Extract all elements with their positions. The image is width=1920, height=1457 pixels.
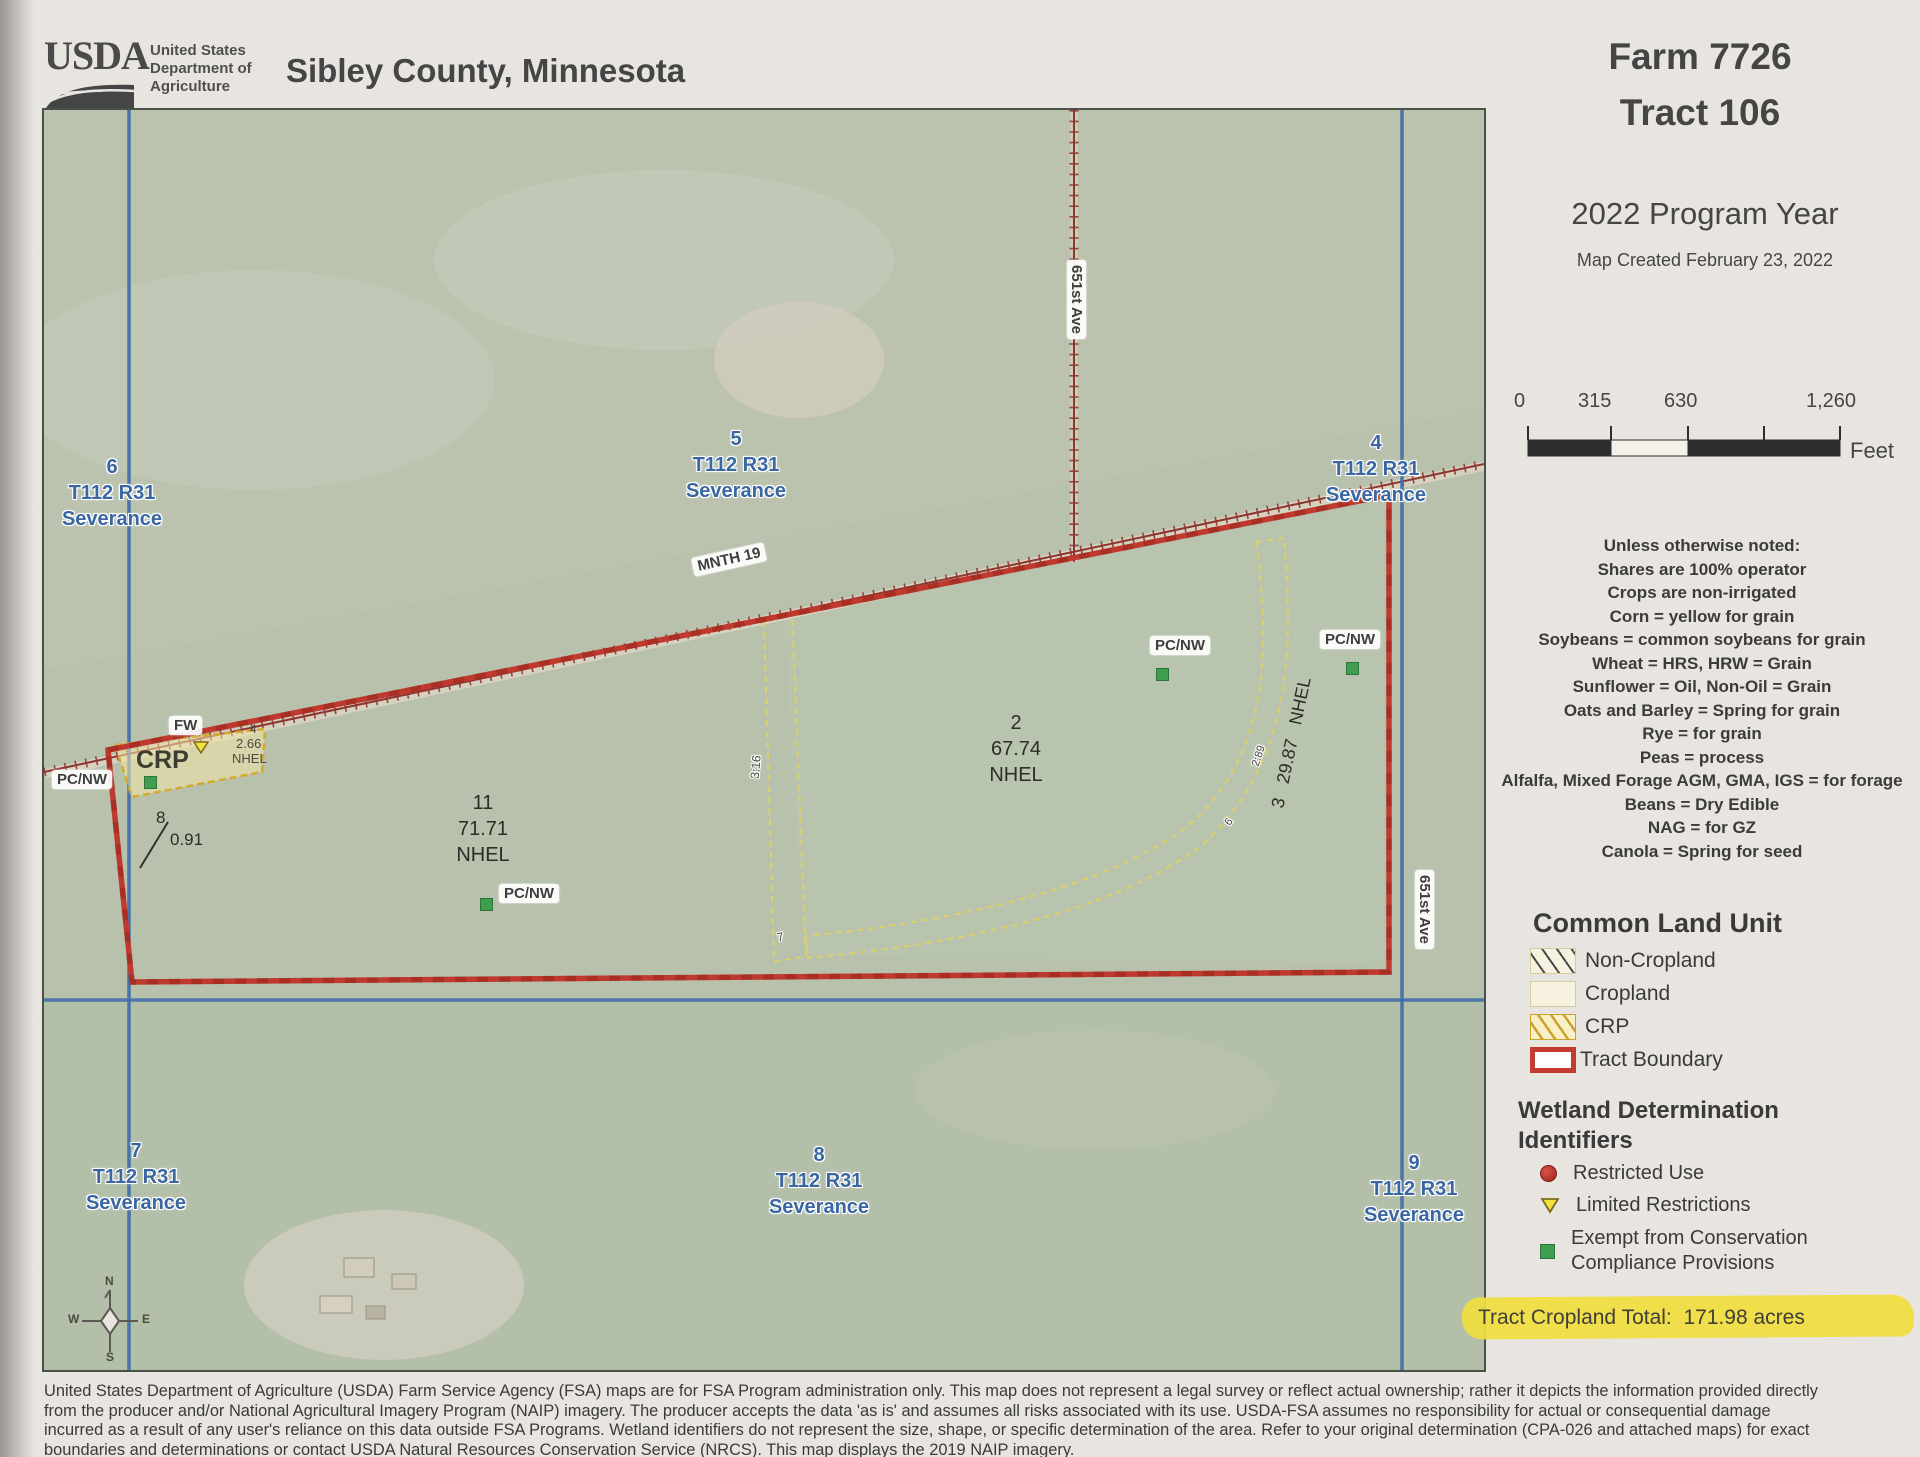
note-line: Beans = Dry Edible [1482, 793, 1920, 817]
legend-row-restricted: Restricted Use [1540, 1162, 1808, 1185]
restricted-use-icon [1540, 1165, 1557, 1182]
note-line: Sunflower = Oil, Non-Oil = Grain [1482, 675, 1920, 699]
scale-tick-0: 0 [1514, 390, 1525, 413]
page-title: Sibley County, Minnesota [286, 52, 685, 90]
note-line: Oats and Barley = Spring for grain [1482, 699, 1920, 723]
wetland-legend-title: Wetland Determination Identifiers [1518, 1096, 1779, 1156]
pond-patch [714, 302, 884, 418]
legend-row-cropland: Cropland [1530, 981, 1723, 1007]
compass-w: W [68, 1312, 79, 1326]
note-line: Alfalfa, Mixed Forage AGM, GMA, IGS = fo… [1482, 769, 1920, 793]
field-4-acres: 2.66 [236, 736, 261, 751]
exempt-marker-icon [1346, 662, 1359, 675]
farm-number: Farm 7726 [1490, 36, 1910, 78]
pcnw-label-west: PC/NW [52, 770, 112, 789]
note-line: Peas = process [1482, 746, 1920, 770]
note-line: Canola = Spring for seed [1482, 840, 1920, 864]
section-label-8: 8 T112 R31 Severance [739, 1142, 899, 1220]
disclaimer-line: United States Department of Agriculture … [44, 1382, 1896, 1402]
field8-leader-line [140, 822, 168, 868]
note-line: Unless otherwise noted: [1482, 534, 1920, 558]
legend-row-crp: CRP [1530, 1014, 1723, 1040]
note-line: Shares are 100% operator [1482, 558, 1920, 582]
exempt-icon [1540, 1244, 1555, 1259]
crop-notes: Unless otherwise noted: Shares are 100% … [1482, 534, 1920, 863]
limited-restrictions-marker-icon [192, 740, 210, 755]
disclaimer-text: United States Department of Agriculture … [44, 1382, 1896, 1457]
disclaimer-line: boundaries and determinations or contact… [44, 1441, 1896, 1457]
note-line: Wheat = HRS, HRW = Grain [1482, 652, 1920, 676]
usda-logo: USDA [44, 36, 149, 110]
clu-legend-title: Common Land Unit [1533, 908, 1782, 939]
field-11-label: 11 71.71 NHEL [413, 790, 553, 868]
field-4-hel: NHEL [232, 751, 267, 766]
section-label-5: 5 T112 R31 Severance [656, 426, 816, 504]
cropland-swatch-icon [1530, 981, 1576, 1007]
section-label-7: 7 T112 R31 Severance [66, 1138, 206, 1216]
note-line: Corn = yellow for grain [1482, 605, 1920, 629]
pcnw-label-field11: PC/NW [499, 884, 559, 903]
pcnw-label-field2: PC/NW [1150, 636, 1210, 655]
usda-department-text: United States Department of Agriculture [150, 42, 252, 96]
map-panel: N W E S 6 T112 R31 Severance 5 T112 R31 … [42, 108, 1486, 1372]
tract-boundary-swatch-icon [1530, 1047, 1576, 1073]
wetland-legend: Restricted Use Limited Restrictions Exem… [1540, 1162, 1808, 1285]
scale-tick-630: 630 [1664, 390, 1697, 413]
legend-row-noncropland: Non-Cropland [1530, 948, 1723, 974]
exempt-marker-icon [144, 776, 157, 789]
field-2-label: 2 67.74 NHEL [946, 710, 1086, 788]
tract-cropland-total: Tract Cropland Total: 171.98 acres [1478, 1306, 1805, 1330]
pcnw-label-east: PC/NW [1320, 630, 1380, 649]
scale-unit: Feet [1850, 438, 1894, 464]
crp-swatch-icon [1530, 1014, 1576, 1040]
note-line: Rye = for grain [1482, 722, 1920, 746]
field-4-num: 4 [250, 722, 257, 736]
compass-e: E [142, 1312, 150, 1326]
usda-wordmark: USDA [44, 36, 149, 76]
field-8-num: 8 [156, 808, 165, 828]
note-line: Soybeans = common soybeans for grain [1482, 628, 1920, 652]
scanned-fsa-map-page: USDA United States Department of Agricul… [0, 0, 1920, 1457]
scale-bar [1527, 424, 1843, 464]
scale-tick-315: 315 [1578, 390, 1611, 413]
avenue-label-south: 651st Ave [1415, 870, 1434, 949]
disclaimer-line: from the producer and/or National Agricu… [44, 1402, 1896, 1422]
exempt-marker-icon [1156, 668, 1169, 681]
map-created-date: Map Created February 23, 2022 [1490, 250, 1920, 271]
avenue-label-north: 651st Ave [1067, 260, 1086, 339]
crp-label: CRP [136, 746, 189, 775]
noncropland-swatch-icon [1530, 948, 1576, 974]
field-8-acres: 0.91 [170, 830, 203, 850]
farmstead-ground [244, 1210, 524, 1360]
section-label-9: 9 T112 R31 Severance [1352, 1150, 1476, 1228]
tract-number: Tract 106 [1490, 92, 1910, 134]
legend-row-limited: Limited Restrictions [1540, 1194, 1808, 1217]
fw-label: FW [169, 716, 202, 735]
clu-legend: Non-Cropland Cropland CRP Tract Boundary [1530, 948, 1723, 1080]
note-line: NAG = for GZ [1482, 816, 1920, 840]
note-line: Crops are non-irrigated [1482, 581, 1920, 605]
legend-row-exempt: Exempt from Conservation Compliance Prov… [1540, 1226, 1808, 1276]
dept-line: Department of [150, 60, 252, 78]
exempt-marker-icon [480, 898, 493, 911]
section-label-6: 6 T112 R31 Severance [52, 454, 172, 532]
limited-restrictions-icon [1540, 1197, 1560, 1214]
legend-row-tract-boundary: Tract Boundary [1530, 1047, 1723, 1073]
terrain-patch [914, 1030, 1274, 1150]
program-year: 2022 Program Year [1490, 196, 1920, 232]
dept-line: Agriculture [150, 78, 252, 96]
strip-316-label: 3:16 [748, 755, 764, 779]
dept-line: United States [150, 42, 252, 60]
compass-s: S [106, 1350, 114, 1364]
compass-n: N [105, 1274, 114, 1288]
scale-tick-1260: 1,260 [1806, 390, 1856, 413]
disclaimer-line: incurred as a result of any user's relia… [44, 1421, 1896, 1441]
usda-stripes-icon [44, 78, 136, 110]
section-label-4: 4 T112 R31 Severance [1296, 430, 1456, 508]
